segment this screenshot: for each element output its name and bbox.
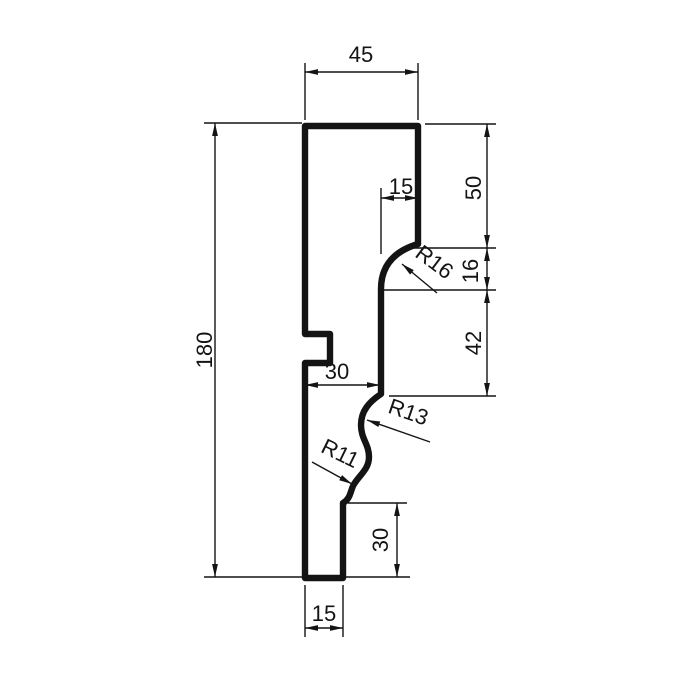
- technical-drawing: 45 180 50 16 42 15 30 R16 R13 R11 30 15: [0, 0, 686, 686]
- dimension-lines: [215, 72, 487, 628]
- dim-arrow: [405, 69, 418, 75]
- arrowheads: [212, 69, 490, 631]
- label-top-width: 45: [349, 42, 373, 67]
- dim-arrow: [484, 277, 490, 290]
- label-overall-height: 180: [192, 332, 217, 369]
- dim-arrow: [212, 564, 218, 577]
- label-radius-r13: R13: [385, 394, 431, 431]
- leader-arrow-r13: [366, 417, 380, 427]
- label-bottom-face: 30: [368, 528, 393, 552]
- dim-arrow: [305, 69, 318, 75]
- drawing-canvas: 45 180 50 16 42 15 30 R16 R13 R11 30 15: [0, 0, 686, 686]
- dim-arrow: [484, 248, 490, 261]
- dim-arrow: [394, 503, 400, 516]
- label-mid-face: 42: [461, 331, 486, 355]
- label-mid-depth: 30: [325, 359, 349, 384]
- dimension-labels: 45 180 50 16 42 15 30 R16 R13 R11 30 15: [192, 42, 486, 626]
- label-corner-height: 16: [458, 259, 483, 283]
- dim-arrow: [484, 124, 490, 137]
- label-upper-face: 50: [461, 176, 486, 200]
- label-bottom-width: 15: [312, 601, 336, 626]
- dim-arrow: [394, 564, 400, 577]
- label-step-width: 15: [389, 174, 413, 199]
- dim-arrow: [484, 235, 490, 248]
- dim-arrow: [212, 123, 218, 136]
- dim-arrow: [484, 290, 490, 303]
- label-radius-r11: R11: [317, 434, 363, 473]
- extension-lines: [204, 63, 496, 637]
- dim-arrow: [484, 383, 490, 396]
